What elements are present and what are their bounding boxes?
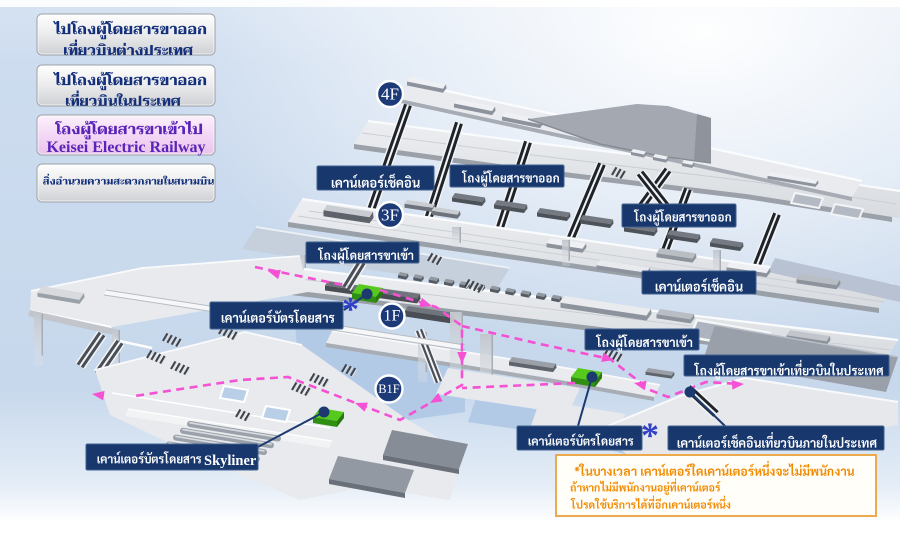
svg-text:4F: 4F [381,85,399,104]
svg-text:Skyliner: Skyliner [204,453,257,469]
svg-text:B1F: B1F [378,382,400,396]
svg-text:*: * [641,415,659,455]
svg-text:Keisei Electric Railway: Keisei Electric Railway [46,139,205,156]
svg-text:*: * [342,291,359,328]
svg-text:3F: 3F [381,206,399,225]
svg-text:1F: 1F [384,308,401,325]
